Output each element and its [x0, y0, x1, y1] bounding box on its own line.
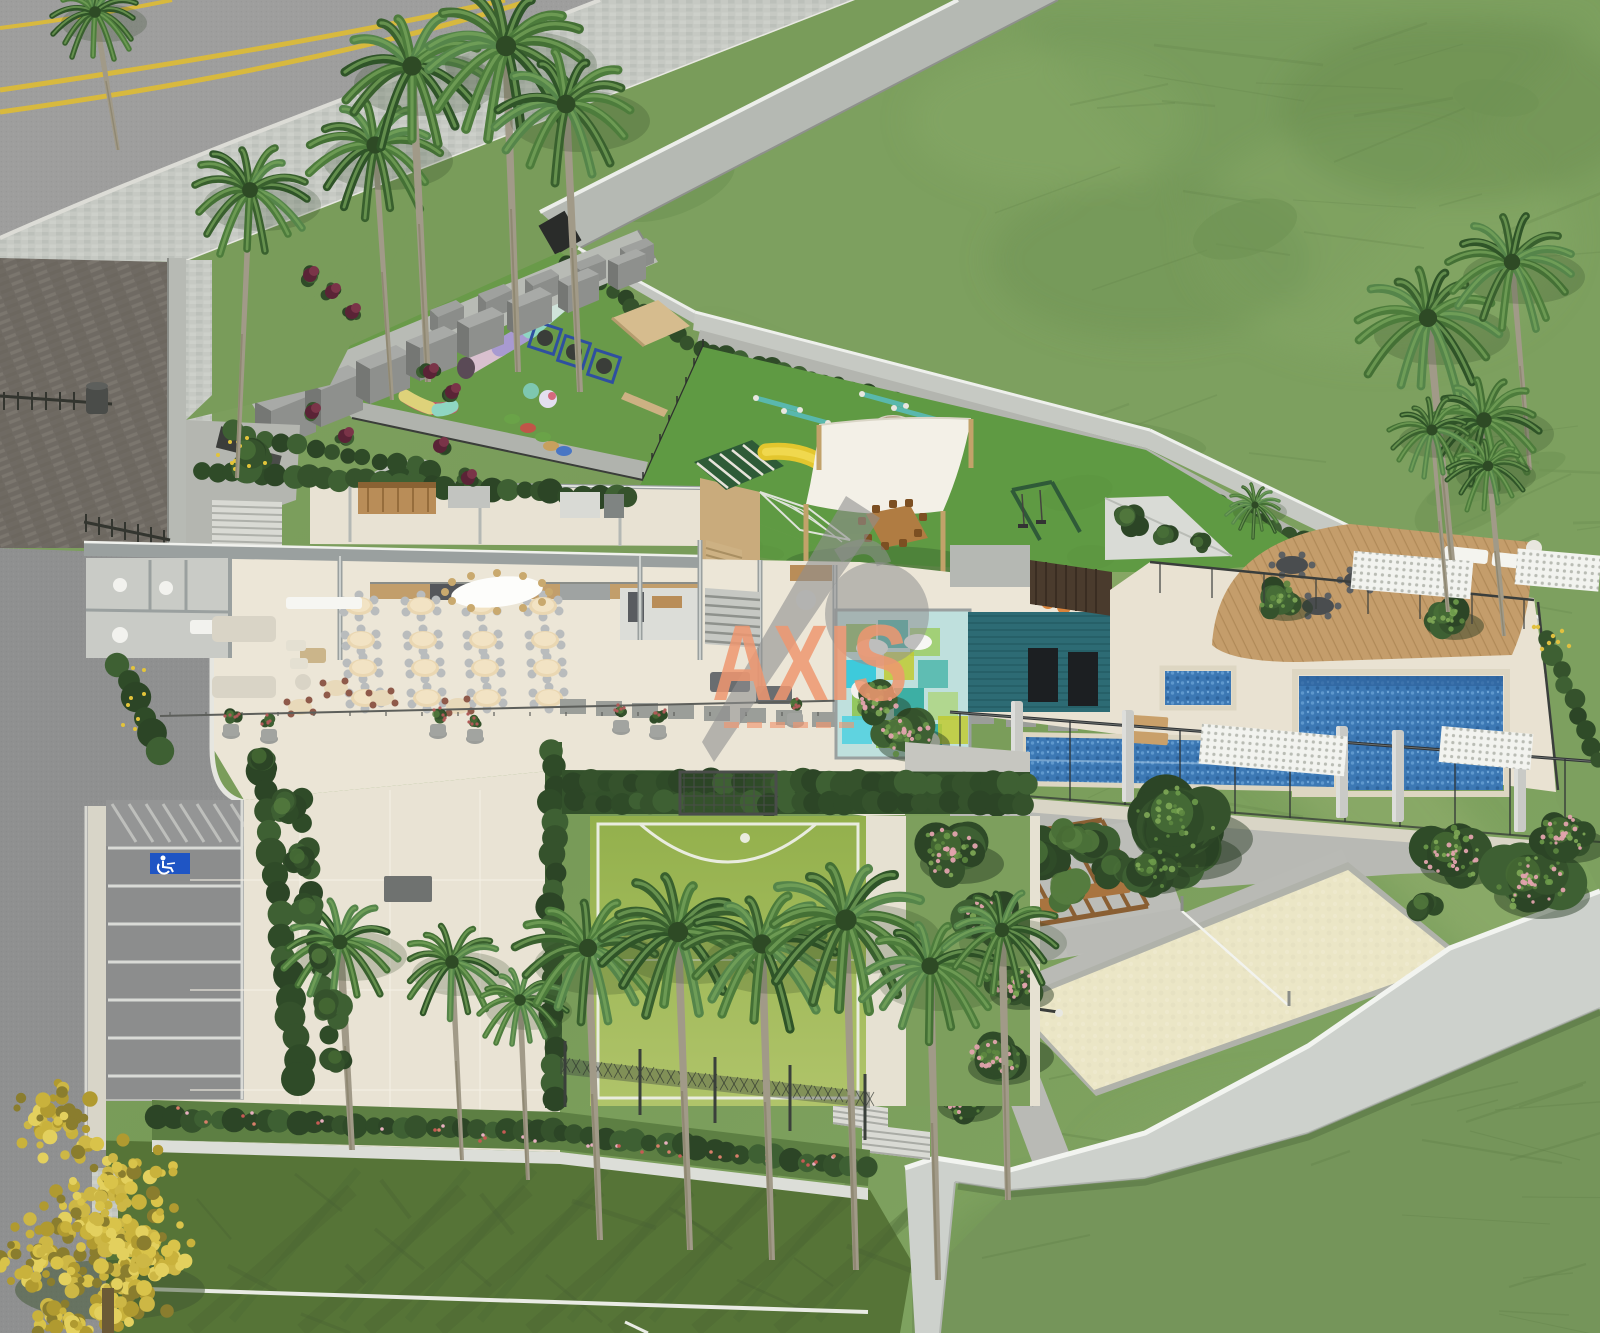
svg-text:AXIS: AXIS — [712, 602, 908, 723]
